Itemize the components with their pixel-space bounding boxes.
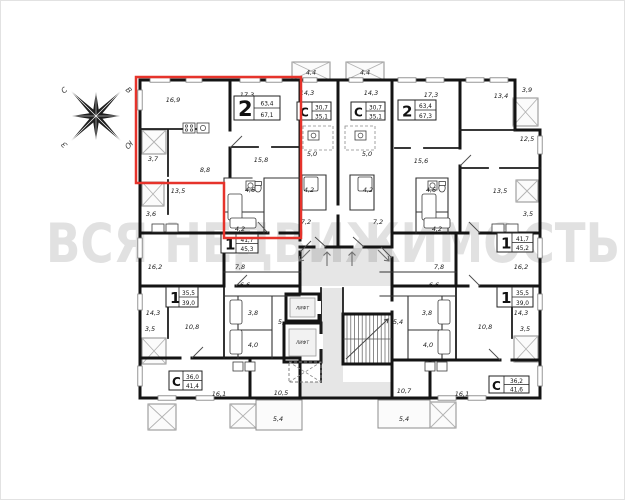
room-area-label: 12,5 <box>520 135 534 143</box>
elevator-label: ЛИФТ <box>295 340 309 346</box>
room-area-label: 4,4 <box>360 69 370 77</box>
living-area: 63,4 <box>261 102 274 108</box>
apartment-label-apt-2room-right[interactable]: 2 63,4 67,3 <box>398 100 436 121</box>
room-area-label: 3,5 <box>523 210 533 218</box>
room-area-label: 16,1 <box>455 390 469 398</box>
room-area-label: 16,9 <box>166 96 180 104</box>
apartment-label-apt-1room-mid-right[interactable]: 1 41,7 45,2 <box>497 233 533 253</box>
apartment-label-apt-2room-left[interactable]: 2 63,4 67,1 <box>234 96 280 121</box>
apartment-type: 2 <box>238 97 253 121</box>
room-area-label: 4,4 <box>306 69 316 77</box>
room-area-label: 8,8 <box>200 166 210 174</box>
living-area: 30,7 <box>315 106 328 112</box>
total-area: 41,6 <box>510 388 523 394</box>
room-area-label: 7,2 <box>301 218 311 226</box>
room-area-label: 5,4 <box>399 415 409 423</box>
room-area-label: 10,8 <box>478 323 492 331</box>
floor-plan: ВСЯ НЕДВИЖИМОСТЬ <box>0 0 625 500</box>
apartment-type: С <box>492 379 501 393</box>
room-area-label: 3,5 <box>145 325 155 333</box>
total-area: 45,2 <box>516 246 529 252</box>
apartment-type: С <box>172 375 181 389</box>
room-area-label: 3,5 <box>520 325 530 333</box>
room-area-label: 16,2 <box>148 263 162 271</box>
total-area: 45,3 <box>241 247 254 253</box>
room-area-label: 5,0 <box>307 150 317 158</box>
room-area-label: 10,5 <box>274 389 288 397</box>
total-area: 35,1 <box>369 115 382 121</box>
living-area: 63,4 <box>419 104 432 110</box>
room-area-label: 4,0 <box>423 341 433 349</box>
room-area-label: 3,7 <box>148 155 159 163</box>
room-area-label: 4,6 <box>245 186 255 194</box>
room-area-label: 3,9 <box>522 86 532 94</box>
total-area: 35,1 <box>315 115 328 121</box>
apartment-type: 1 <box>501 289 511 307</box>
living-area: 30,7 <box>369 106 382 112</box>
total-area: 67,3 <box>419 114 432 120</box>
total-area: 41,4 <box>186 384 199 390</box>
apartment-label-studio-top-right[interactable]: С 30,7 35,1 <box>351 102 385 121</box>
room-area-label: 4,2 <box>235 225 245 233</box>
room-area-label: 13,5 <box>171 187 185 195</box>
apartment-label-apt-1room-lower-left[interactable]: 1 35,5 39,0 <box>166 287 198 307</box>
room-area-label: 5,4 <box>273 415 283 423</box>
room-area-label: 7,8 <box>434 263 444 271</box>
room-area-label: 10,7 <box>397 387 412 395</box>
room-area-label: 17,3 <box>424 91 438 99</box>
room-area-label: 14,3 <box>364 89 378 97</box>
room-area-label: 13,4 <box>494 92 508 100</box>
room-area-label: 14,3 <box>514 309 528 317</box>
living-area: 36,2 <box>510 379 523 385</box>
room-area-label: 4,2 <box>304 186 314 194</box>
room-area-label: 4,0 <box>248 341 258 349</box>
total-area: 39,0 <box>182 301 195 307</box>
room-area-label: 15,8 <box>254 156 268 164</box>
living-area: 41,7 <box>516 237 529 243</box>
room-area-label: 3,6 <box>146 210 156 218</box>
room-area-label: 7,2 <box>373 218 383 226</box>
room-area-label: 3,8 <box>248 309 258 317</box>
floor-plan-page: ВСЯ НЕДВИЖИМОСТЬ <box>0 0 625 500</box>
room-area-label: 5,4 <box>393 318 403 326</box>
room-area-label: 4,6 <box>426 186 436 194</box>
room-area-label: 6,6 <box>240 281 250 289</box>
apartment-label-studio-bottom-right[interactable]: С 36,2 41,6 <box>489 376 529 394</box>
watermark-text: ВСЯ НЕДВИЖИМОСТЬ <box>46 212 620 275</box>
room-area-label: 4,2 <box>432 225 442 233</box>
room-area-label: 5,0 <box>362 150 372 158</box>
apartment-type: 1 <box>501 235 511 253</box>
living-area: 35,5 <box>182 291 195 297</box>
room-area-label: 7,8 <box>235 263 245 271</box>
apartment-type: 2 <box>402 103 412 121</box>
elevator-label: ЛИФТ <box>295 306 309 312</box>
room-area-label: 16,2 <box>514 263 528 271</box>
room-area-label: 4,2 <box>363 186 373 194</box>
total-area: 39,0 <box>516 301 529 307</box>
room-area-label: 5,4 <box>278 318 288 326</box>
apartment-label-studio-bottom-left[interactable]: С 36,0 41,4 <box>169 371 202 390</box>
room-area-label: 15,6 <box>414 157 428 165</box>
room-area-label: 6,6 <box>429 281 439 289</box>
room-area-label: 14,3 <box>146 309 160 317</box>
total-area: 67,1 <box>261 113 274 119</box>
apartment-label-apt-1room-lower-right[interactable]: 1 35,5 39,0 <box>497 287 533 307</box>
elevator-door-2 <box>319 334 323 349</box>
elevator-door-1 <box>317 301 321 314</box>
room-area-label: 13,5 <box>493 187 507 195</box>
apartment-type: С <box>354 106 363 120</box>
living-area: 36,0 <box>186 375 199 381</box>
room-area-label: 16,1 <box>212 390 226 398</box>
room-area-label: 10,8 <box>185 323 199 331</box>
living-area: 35,5 <box>516 291 529 297</box>
room-area-label: 3,8 <box>422 309 432 317</box>
